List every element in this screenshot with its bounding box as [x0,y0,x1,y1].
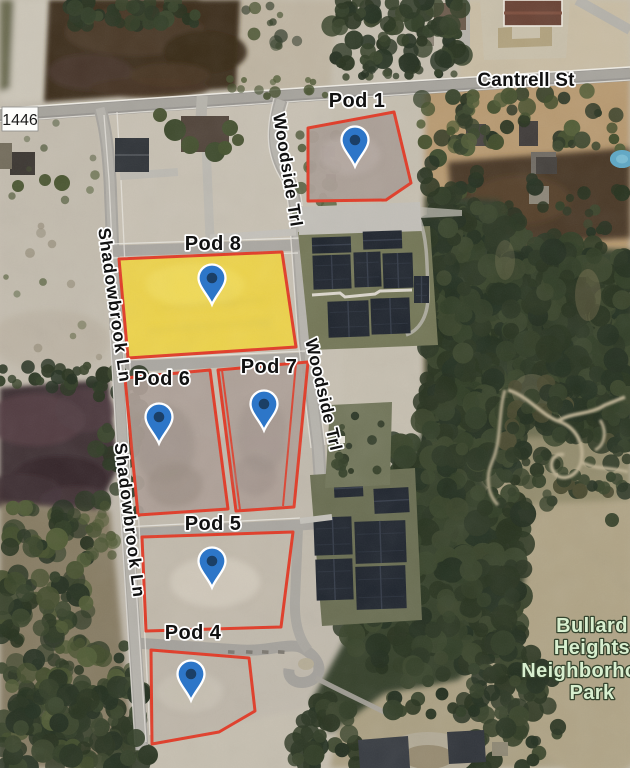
svg-text:Neighborhood: Neighborhood [521,660,630,682]
svg-text:Park: Park [570,682,615,704]
svg-text:Cantrell St: Cantrell St [477,70,575,91]
svg-text:Pod 7: Pod 7 [241,356,297,378]
svg-text:Pod 4: Pod 4 [165,622,222,644]
svg-text:Heights: Heights [554,637,630,659]
svg-text:Pod 6: Pod 6 [134,368,190,390]
svg-text:Bullard: Bullard [556,615,628,637]
svg-text:Pod 8: Pod 8 [185,233,241,255]
svg-text:Pod 1: Pod 1 [329,90,385,112]
svg-text:Pod 5: Pod 5 [185,513,241,535]
svg-text:1446: 1446 [2,112,38,129]
